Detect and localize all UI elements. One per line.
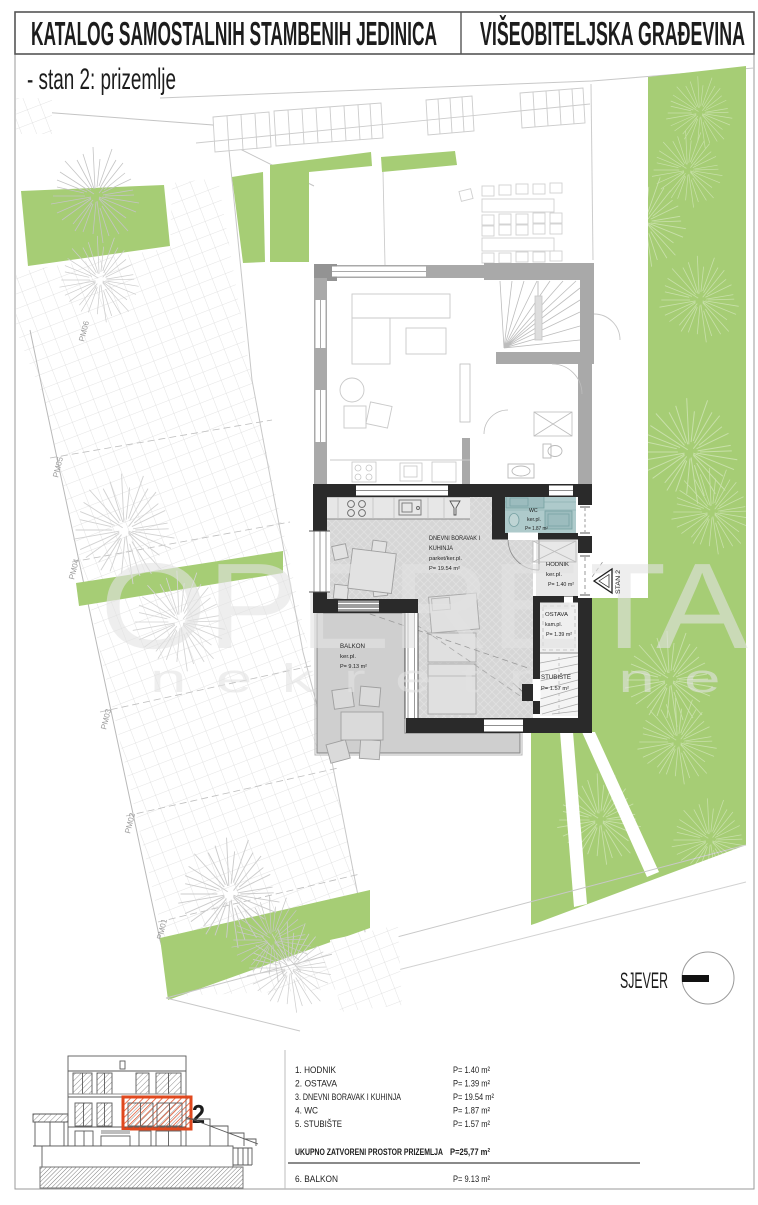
svg-text:P= 1.57 m²: P= 1.57 m² xyxy=(453,1119,490,1130)
svg-text:ker.pl.: ker.pl. xyxy=(340,654,356,660)
svg-text:P= 9.13 m²: P= 9.13 m² xyxy=(453,1174,490,1185)
svg-text:2: 2 xyxy=(192,1099,205,1129)
svg-text:P= 19.54 m²: P= 19.54 m² xyxy=(453,1092,494,1103)
svg-text:P= 1.57 m²: P= 1.57 m² xyxy=(541,686,569,692)
svg-text:P= 1.87 m²: P= 1.87 m² xyxy=(525,526,548,532)
svg-text:VIŠEOBITELJSKA GRAĐEVINA: VIŠEOBITELJSKA GRAĐEVINA xyxy=(480,14,745,52)
svg-text:parket/ker.pl.: parket/ker.pl. xyxy=(429,556,462,562)
svg-text:1. HODNIK: 1. HODNIK xyxy=(295,1065,337,1076)
svg-text:6. BALKON: 6. BALKON xyxy=(295,1174,338,1185)
svg-text:P= 1.40 m²: P= 1.40 m² xyxy=(548,582,574,588)
svg-text:P= 1.40 m²: P= 1.40 m² xyxy=(453,1065,490,1076)
svg-text:nekretnine: nekretnine xyxy=(150,657,750,701)
svg-text:DNEVNI BORAVAK I: DNEVNI BORAVAK I xyxy=(429,535,480,542)
svg-text:4. WC: 4. WC xyxy=(295,1106,318,1117)
svg-text:UKUPNO ZATVORENI PROSTOR PRIZE: UKUPNO ZATVORENI PROSTOR PRIZEMLJA xyxy=(295,1147,443,1158)
svg-text:BALKON: BALKON xyxy=(340,643,365,650)
svg-text:P=25,77 m²: P=25,77 m² xyxy=(450,1147,490,1158)
svg-text:P= 19.54 m²: P= 19.54 m² xyxy=(429,566,460,572)
svg-text:WC: WC xyxy=(529,508,538,514)
svg-text:OSTAVA: OSTAVA xyxy=(545,612,568,618)
svg-text:ker.pl.: ker.pl. xyxy=(546,572,562,578)
svg-text:STAN 2: STAN 2 xyxy=(616,569,622,594)
svg-text:P= 1.39 m²: P= 1.39 m² xyxy=(546,632,572,638)
svg-text:2. OSTAVA: 2. OSTAVA xyxy=(295,1079,338,1090)
svg-text:KUHINJA: KUHINJA xyxy=(429,545,454,552)
svg-text:ker.pl.: ker.pl. xyxy=(527,517,541,523)
svg-text:OPERETA: OPERETA xyxy=(100,538,749,674)
svg-text:P= 1.39 m²: P= 1.39 m² xyxy=(453,1079,490,1090)
svg-text:STUBIŠTE: STUBIŠTE xyxy=(541,674,571,681)
svg-text:- stan 2: prizemlje: - stan 2: prizemlje xyxy=(27,63,176,96)
svg-text:kam.pl.: kam.pl. xyxy=(545,622,562,628)
svg-text:KATALOG SAMOSTALNIH STAMBENIH: KATALOG SAMOSTALNIH STAMBENIH JEDINICA xyxy=(31,15,437,52)
svg-text:P= 9.13 m²: P= 9.13 m² xyxy=(340,664,367,670)
svg-text:P= 1.87 m²: P= 1.87 m² xyxy=(453,1106,490,1117)
svg-text:SJEVER: SJEVER xyxy=(620,968,668,993)
svg-text:HODNIK: HODNIK xyxy=(546,562,569,568)
svg-text:3. DNEVNI BORAVAK I KUHINJA: 3. DNEVNI BORAVAK I KUHINJA xyxy=(295,1092,401,1103)
svg-text:5. STUBIŠTE: 5. STUBIŠTE xyxy=(295,1119,342,1130)
